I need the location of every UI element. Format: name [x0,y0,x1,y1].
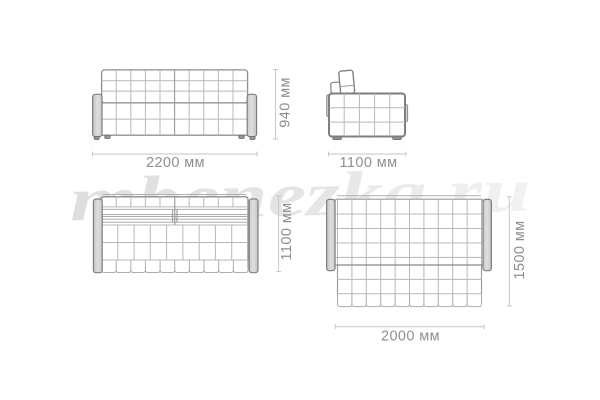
svg-text:1500 мм: 1500 мм [512,220,528,279]
svg-text:2200 мм: 2200 мм [146,155,205,171]
svg-text:1100 мм: 1100 мм [279,203,295,261]
svg-text:940 мм: 940 мм [278,77,294,128]
svg-text:1100 мм: 1100 мм [340,155,398,171]
svg-text:2000 мм: 2000 мм [381,329,440,345]
